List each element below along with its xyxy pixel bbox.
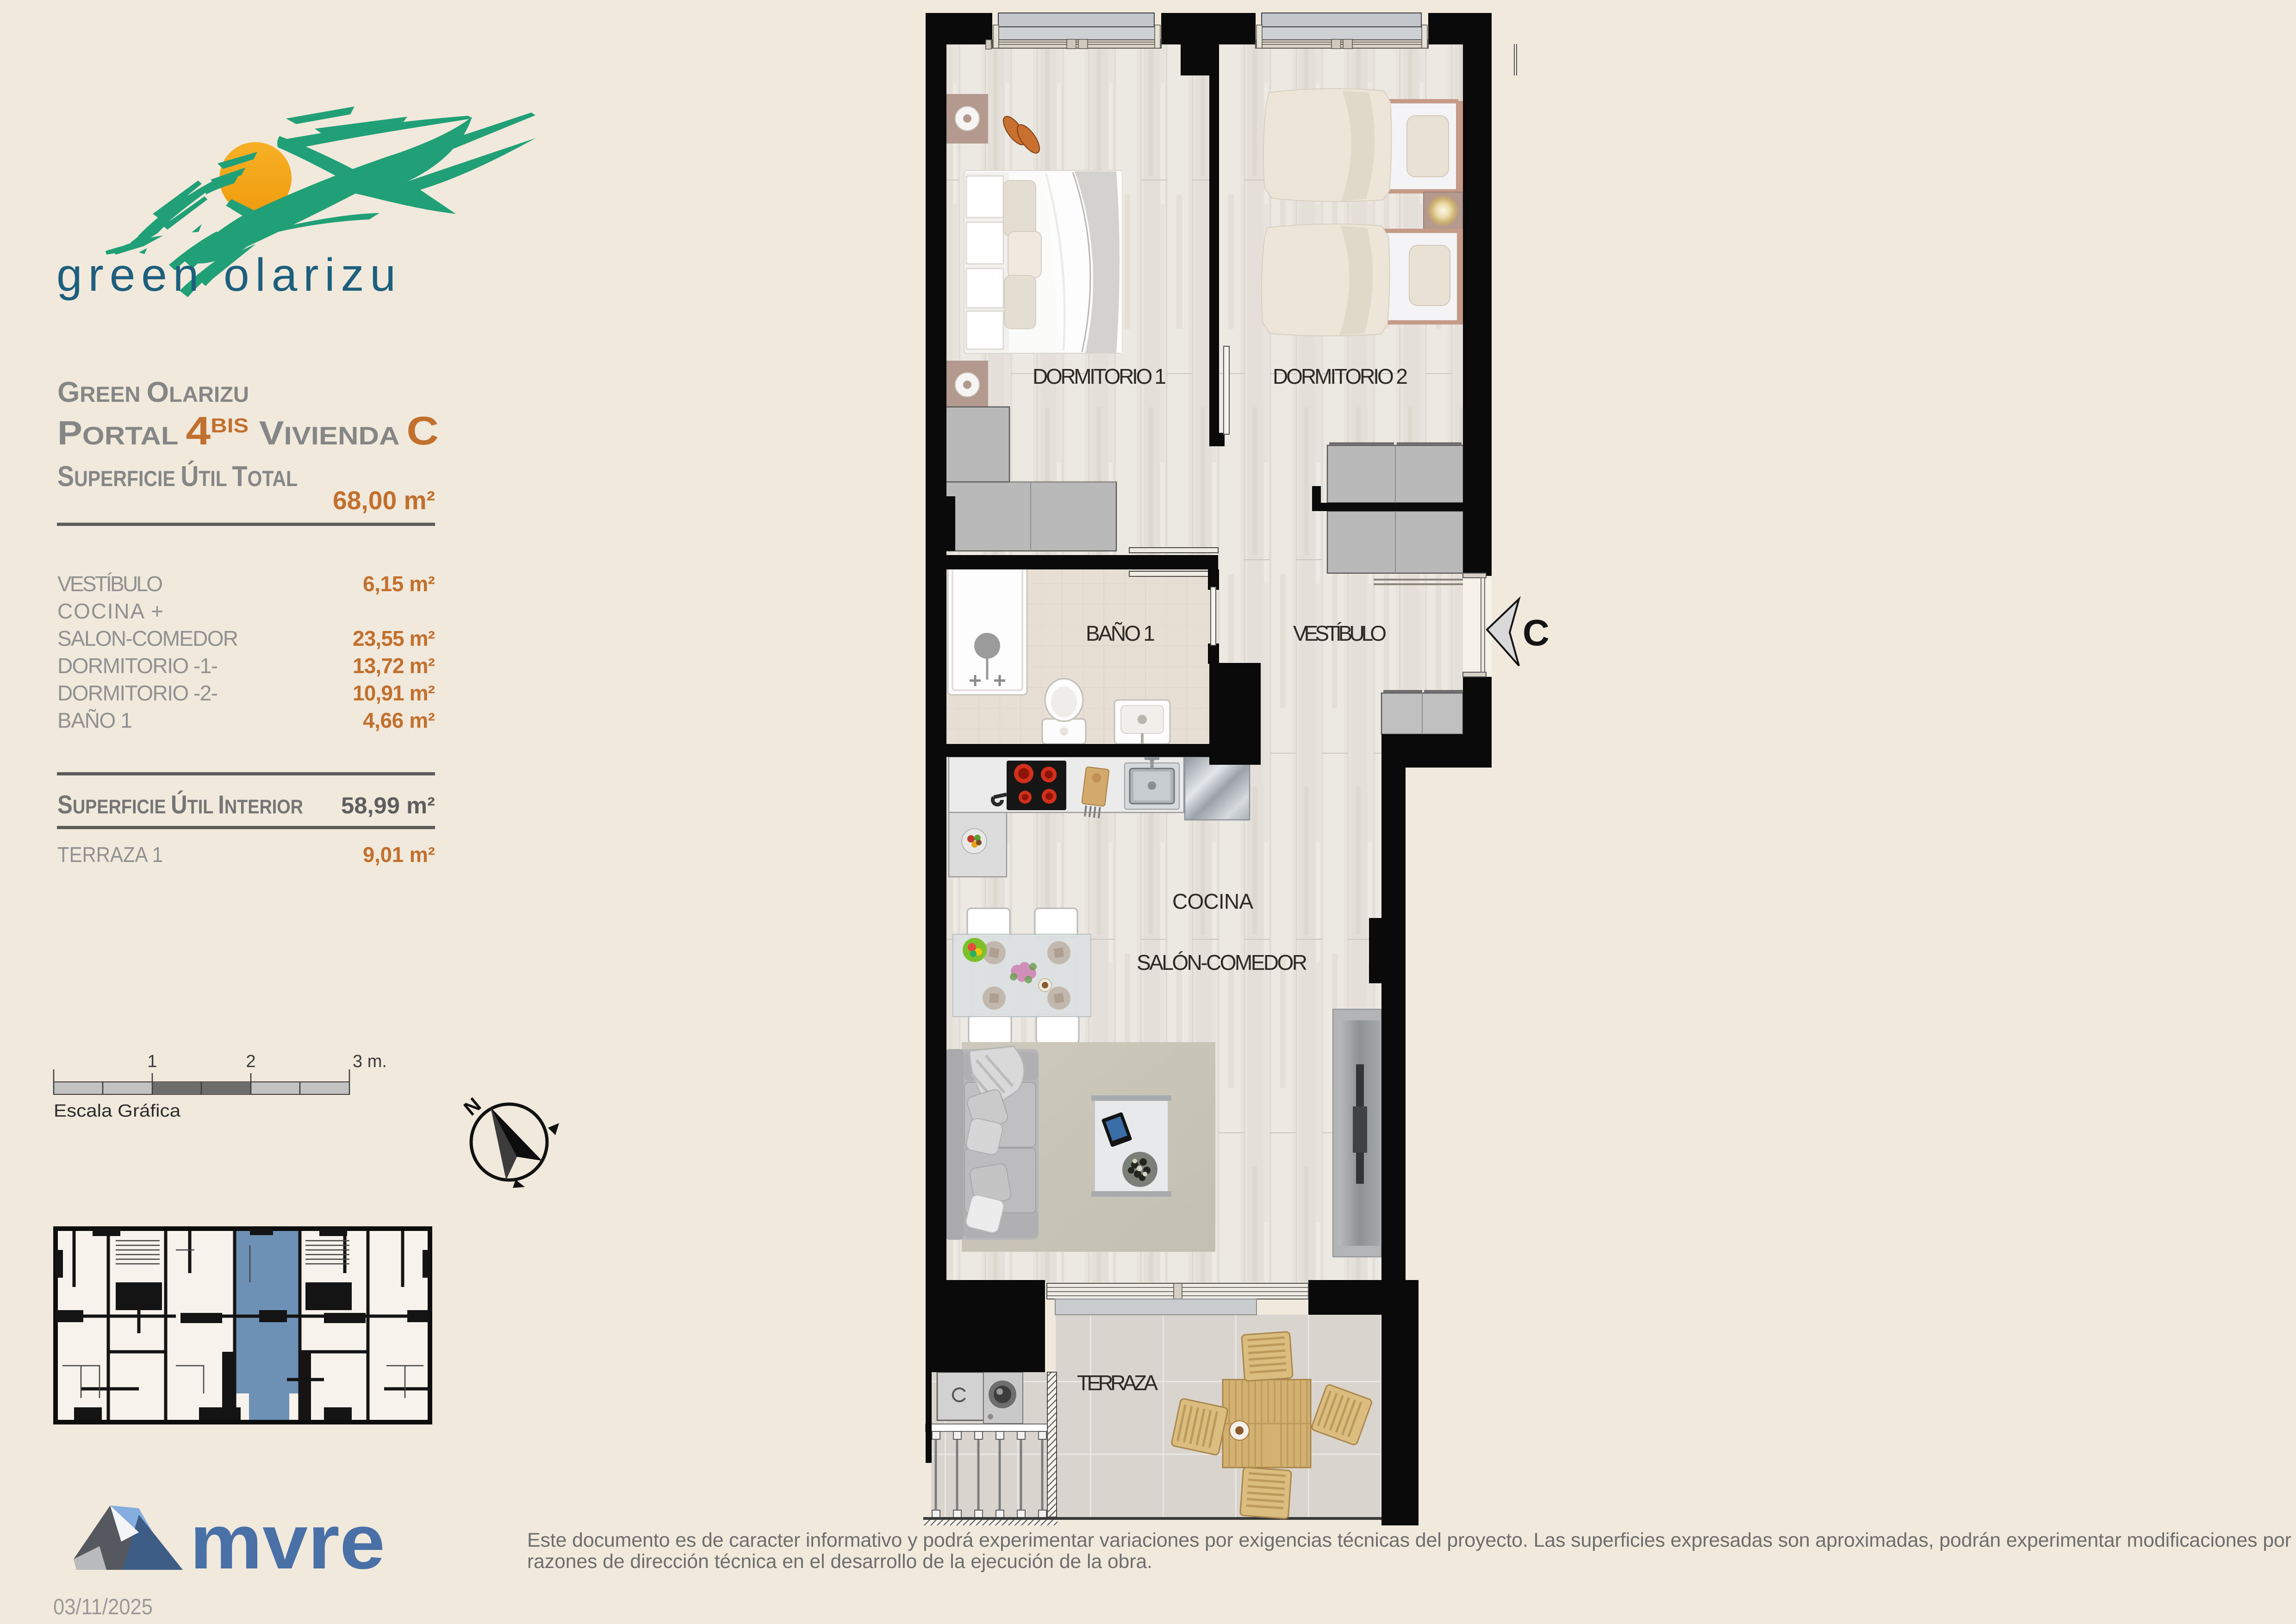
svg-text:3 m.: 3 m.	[353, 1052, 387, 1071]
svg-text:2: 2	[246, 1052, 255, 1071]
svg-text:C: C	[1523, 612, 1549, 653]
svg-text:23,55 m²: 23,55 m²	[353, 626, 435, 650]
svg-text:DORMITORIO -2-: DORMITORIO -2-	[57, 681, 218, 705]
svg-text:1: 1	[147, 1052, 157, 1071]
svg-text:COCINA +: COCINA +	[57, 599, 163, 623]
svg-text:9,01 m²: 9,01 m²	[363, 843, 435, 867]
svg-text:razones de dirección técnica e: razones de dirección técnica en el desar…	[527, 1550, 1152, 1573]
svg-text:mvre: mvre	[190, 1498, 385, 1585]
svg-text:03/11/2025: 03/11/2025	[53, 1595, 153, 1619]
svg-text:TERRAZA: TERRAZA	[1077, 1371, 1158, 1395]
svg-text:13,72 m²: 13,72 m²	[353, 654, 435, 678]
svg-text:10,91 m²: 10,91 m²	[353, 681, 435, 705]
svg-text:58,99 m²: 58,99 m²	[341, 793, 435, 818]
svg-text:TERRAZA 1: TERRAZA 1	[57, 843, 163, 867]
svg-text:BAÑO 1: BAÑO 1	[1086, 621, 1155, 645]
svg-text:DORMITORIO 2: DORMITORIO 2	[1273, 364, 1408, 388]
svg-text:VESTÍBULO: VESTÍBULO	[57, 572, 163, 596]
svg-text:DORMITORIO -1-: DORMITORIO -1-	[57, 654, 218, 678]
svg-text:6,15 m²: 6,15 m²	[363, 572, 435, 596]
svg-text:4,66 m²: 4,66 m²	[363, 708, 435, 732]
svg-text:DORMITORIO 1: DORMITORIO 1	[1033, 364, 1166, 388]
svg-text:Este documento es de caracter: Este documento es de caracter informativ…	[527, 1529, 2291, 1551]
svg-text:Escala Gráfica: Escala Gráfica	[54, 1101, 181, 1121]
svg-text:COCINA: COCINA	[1172, 889, 1253, 913]
svg-text:BAÑO 1: BAÑO 1	[57, 708, 132, 732]
svg-text:68,00 m²: 68,00 m²	[333, 486, 435, 515]
svg-text:SALÓN-COMEDOR: SALÓN-COMEDOR	[1137, 950, 1307, 974]
svg-text:SALON-COMEDOR: SALON-COMEDOR	[57, 626, 238, 650]
svg-text:VESTÍBULO: VESTÍBULO	[1293, 621, 1387, 645]
